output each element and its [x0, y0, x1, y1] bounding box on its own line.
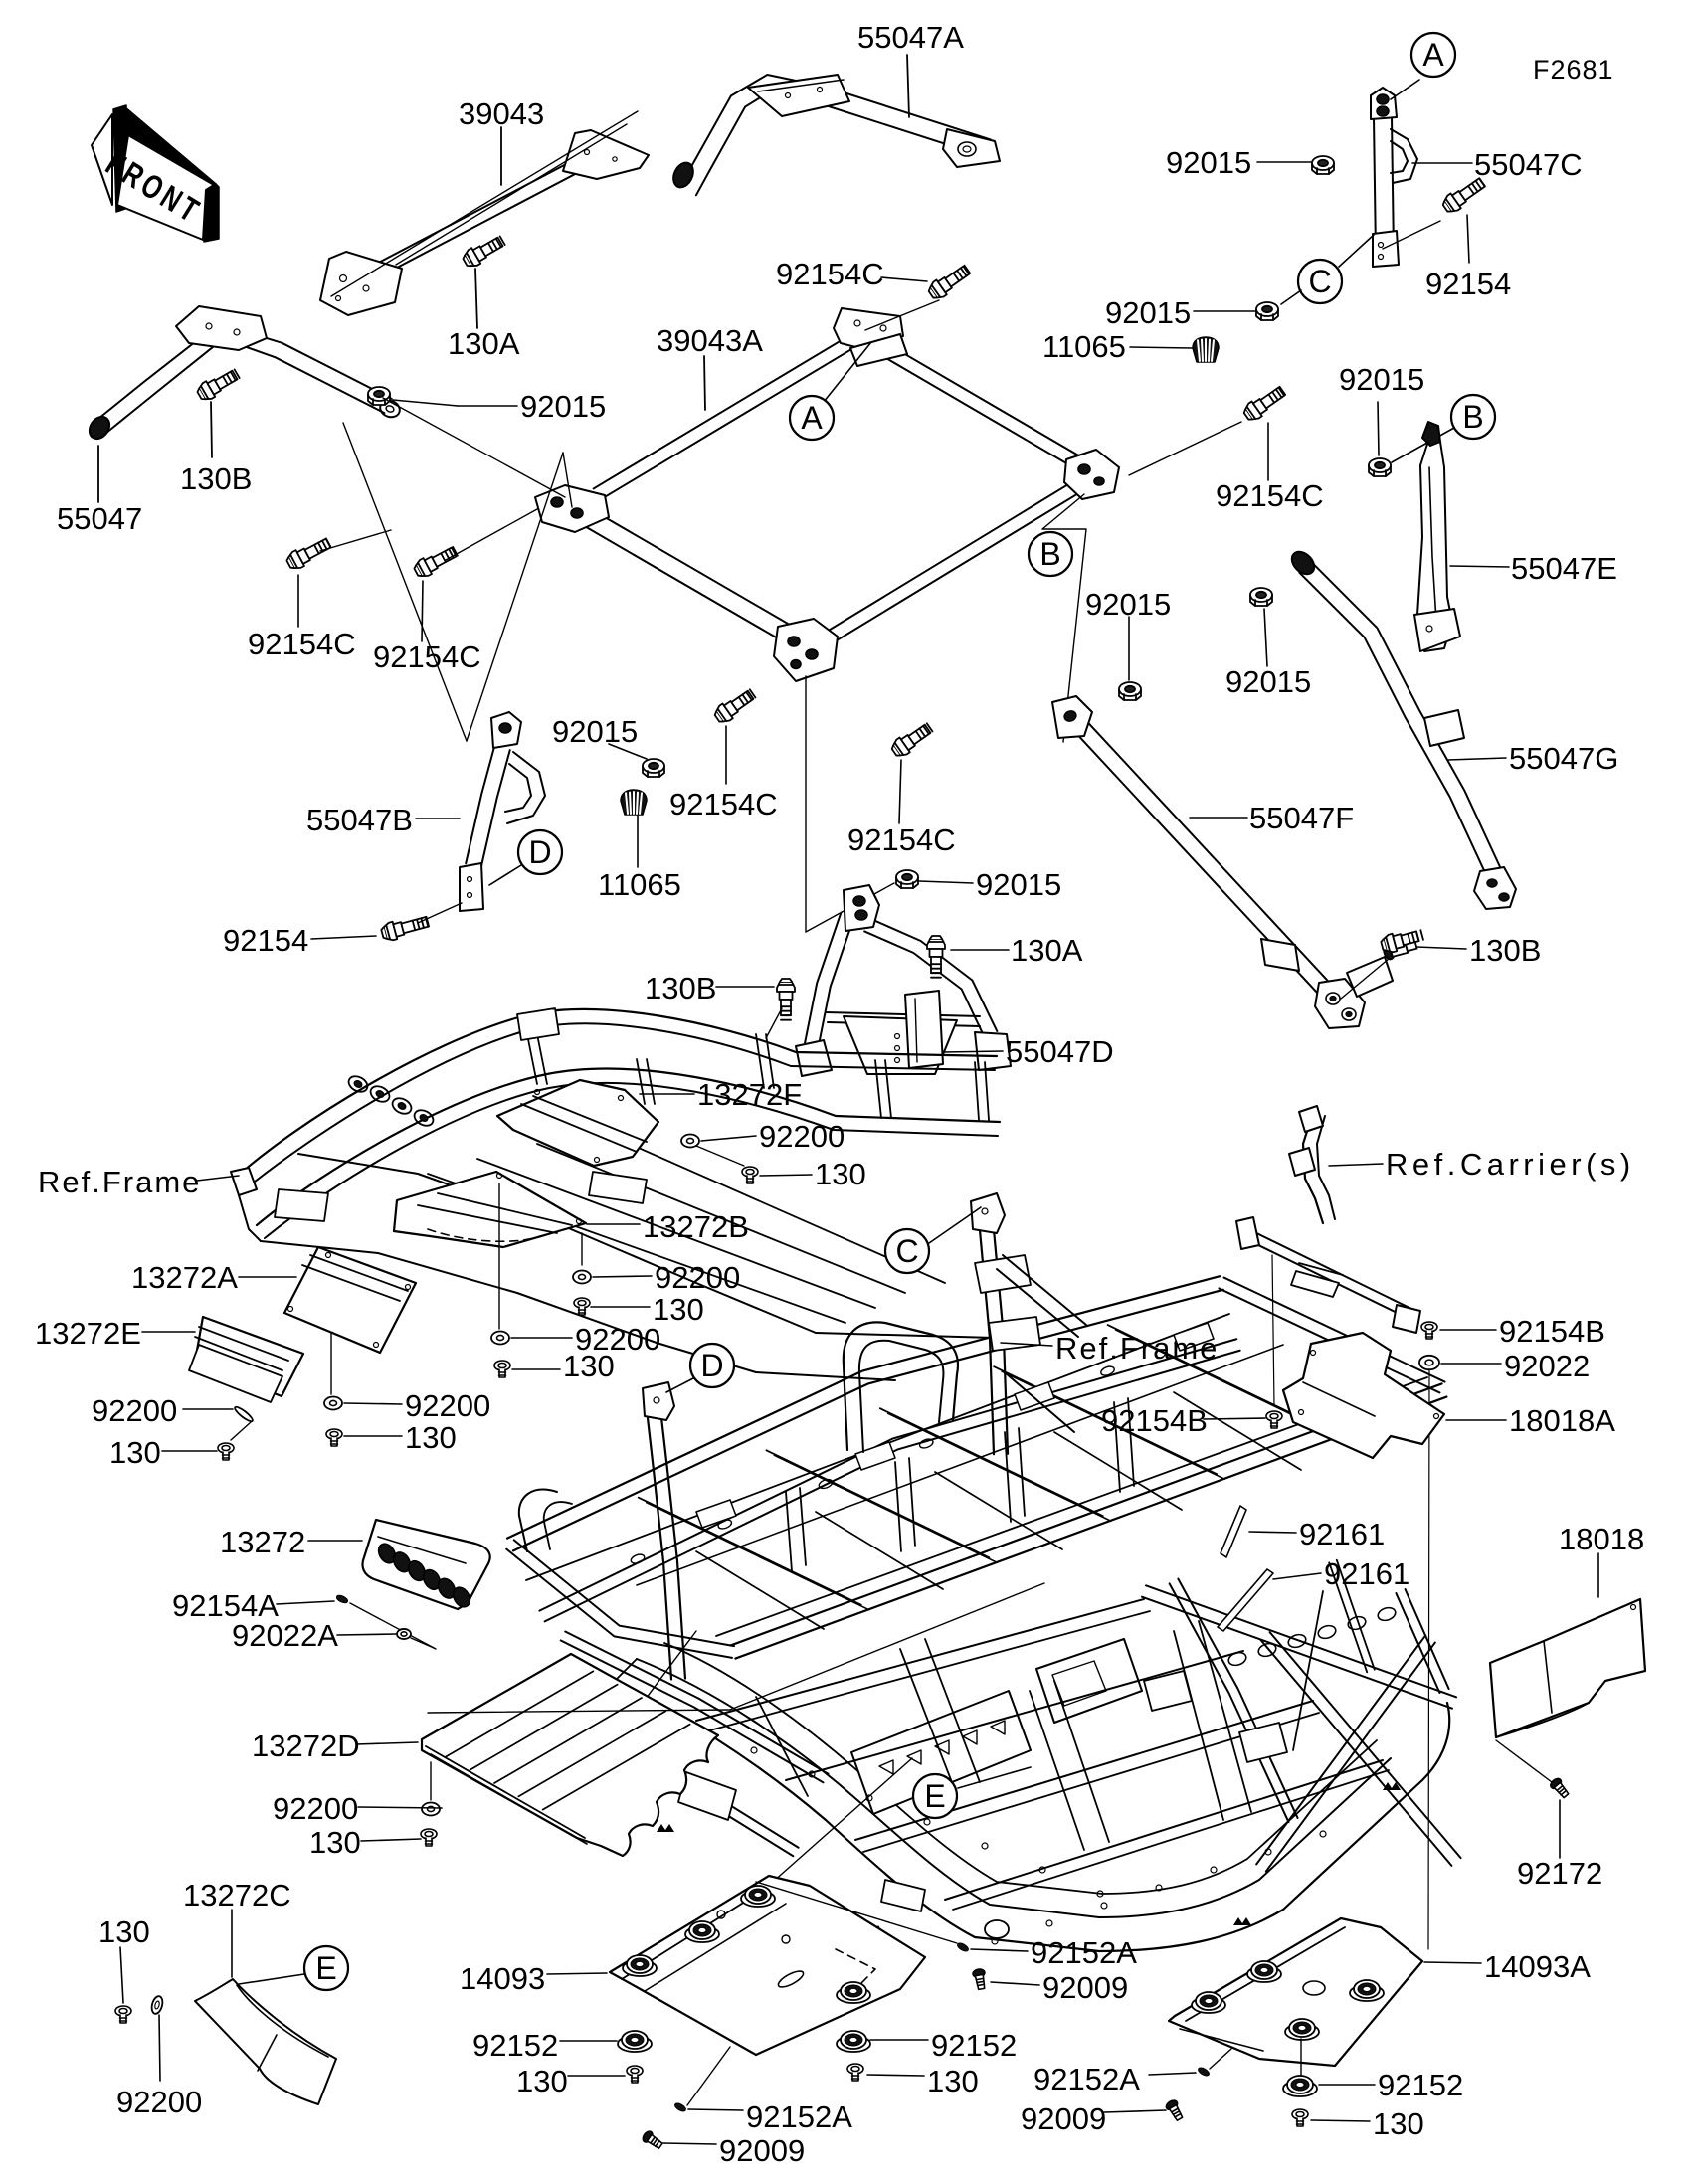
svg-text:92161: 92161 — [1299, 1517, 1385, 1551]
svg-text:55047E: 55047E — [1511, 551, 1617, 586]
svg-text:18018: 18018 — [1559, 1522, 1644, 1556]
svg-text:92015: 92015 — [976, 867, 1061, 902]
svg-text:92154: 92154 — [1425, 267, 1511, 301]
svg-text:130: 130 — [927, 2064, 979, 2098]
svg-text:130A: 130A — [448, 326, 520, 361]
svg-text:55047F: 55047F — [1249, 801, 1354, 835]
svg-text:130A: 130A — [1011, 933, 1083, 968]
svg-text:92154B: 92154B — [1101, 1403, 1208, 1438]
svg-text:F2681: F2681 — [1533, 55, 1614, 85]
svg-text:92200: 92200 — [273, 1791, 358, 1826]
svg-text:C: C — [1308, 264, 1331, 299]
svg-text:13272E: 13272E — [35, 1316, 141, 1351]
svg-text:92015: 92015 — [1225, 664, 1311, 699]
svg-text:92200: 92200 — [759, 1119, 845, 1154]
svg-text:B: B — [1039, 536, 1060, 572]
svg-text:13272: 13272 — [220, 1525, 305, 1559]
svg-text:130B: 130B — [180, 461, 252, 496]
svg-text:92022: 92022 — [1504, 1349, 1590, 1383]
svg-text:92152: 92152 — [472, 2028, 558, 2063]
svg-text:13272C: 13272C — [183, 1878, 291, 1912]
svg-text:13272D: 13272D — [252, 1729, 360, 1763]
svg-text:D: D — [700, 1348, 723, 1383]
svg-text:92015: 92015 — [1085, 587, 1171, 622]
svg-text:14093: 14093 — [460, 1961, 545, 1996]
svg-text:92154B: 92154B — [1499, 1314, 1605, 1349]
svg-text:92200: 92200 — [116, 2085, 202, 2119]
svg-text:92152A: 92152A — [1033, 2062, 1140, 2096]
svg-text:92015: 92015 — [1339, 362, 1424, 397]
svg-text:130: 130 — [405, 1420, 457, 1455]
svg-text:E: E — [924, 1778, 945, 1814]
svg-text:92015: 92015 — [520, 389, 606, 424]
svg-text:92152: 92152 — [931, 2028, 1017, 2063]
svg-text:55047D: 55047D — [1006, 1034, 1114, 1069]
svg-text:11065: 11065 — [598, 867, 681, 902]
svg-text:92152A: 92152A — [746, 2099, 852, 2134]
svg-text:92200: 92200 — [405, 1388, 490, 1423]
svg-text:Ref.Carrier(s): Ref.Carrier(s) — [1386, 1147, 1635, 1182]
svg-text:92154C: 92154C — [669, 787, 778, 821]
svg-text:92200: 92200 — [655, 1260, 740, 1295]
svg-text:13272F: 13272F — [697, 1077, 802, 1112]
svg-text:A: A — [1422, 37, 1444, 73]
svg-text:11065: 11065 — [1042, 329, 1126, 364]
svg-text:130B: 130B — [1469, 933, 1541, 968]
svg-text:92152: 92152 — [1378, 2068, 1463, 2102]
svg-text:39043A: 39043A — [657, 323, 763, 358]
svg-text:130: 130 — [815, 1157, 866, 1191]
svg-text:92172: 92172 — [1517, 1856, 1602, 1891]
svg-text:13272B: 13272B — [643, 1209, 749, 1244]
svg-text:92015: 92015 — [1105, 295, 1191, 330]
svg-text:130: 130 — [563, 1349, 615, 1383]
svg-text:92154C: 92154C — [248, 627, 356, 661]
svg-text:92161: 92161 — [1324, 1556, 1409, 1591]
svg-text:B: B — [1462, 399, 1483, 435]
svg-text:92154C: 92154C — [373, 639, 481, 674]
svg-text:92154C: 92154C — [847, 822, 956, 857]
svg-text:18018A: 18018A — [1509, 1403, 1615, 1438]
svg-text:92015: 92015 — [1166, 145, 1251, 180]
svg-text:55047A: 55047A — [857, 20, 964, 55]
svg-text:130: 130 — [1373, 2106, 1424, 2141]
svg-text:92015: 92015 — [552, 714, 638, 749]
svg-text:92152A: 92152A — [1031, 1935, 1137, 1970]
svg-text:130: 130 — [516, 2064, 568, 2098]
svg-text:130B: 130B — [645, 971, 716, 1005]
svg-text:92154: 92154 — [223, 923, 308, 958]
svg-text:130: 130 — [109, 1435, 161, 1470]
svg-text:55047B: 55047B — [306, 803, 413, 837]
svg-text:Ref.Frame: Ref.Frame — [1055, 1331, 1219, 1365]
svg-text:92154C: 92154C — [776, 257, 884, 291]
svg-text:130: 130 — [309, 1825, 361, 1860]
svg-text:92009: 92009 — [1042, 1970, 1128, 2005]
svg-text:55047: 55047 — [57, 501, 142, 536]
svg-text:130: 130 — [98, 1914, 150, 1949]
svg-text:A: A — [801, 400, 823, 436]
svg-text:D: D — [528, 834, 551, 870]
svg-text:C: C — [895, 1233, 918, 1269]
svg-text:55047C: 55047C — [1474, 147, 1583, 182]
svg-text:55047G: 55047G — [1509, 741, 1618, 776]
svg-text:39043: 39043 — [459, 96, 544, 131]
svg-text:Ref.Frame: Ref.Frame — [38, 1165, 201, 1199]
svg-text:13272A: 13272A — [131, 1260, 238, 1295]
svg-text:92154C: 92154C — [1216, 478, 1324, 513]
svg-text:92009: 92009 — [1021, 2101, 1106, 2136]
svg-text:92022A: 92022A — [232, 1618, 338, 1653]
svg-text:92200: 92200 — [92, 1393, 177, 1428]
svg-text:92009: 92009 — [719, 2133, 805, 2168]
svg-text:14093A: 14093A — [1484, 1949, 1591, 1984]
svg-text:E: E — [315, 1950, 336, 1986]
